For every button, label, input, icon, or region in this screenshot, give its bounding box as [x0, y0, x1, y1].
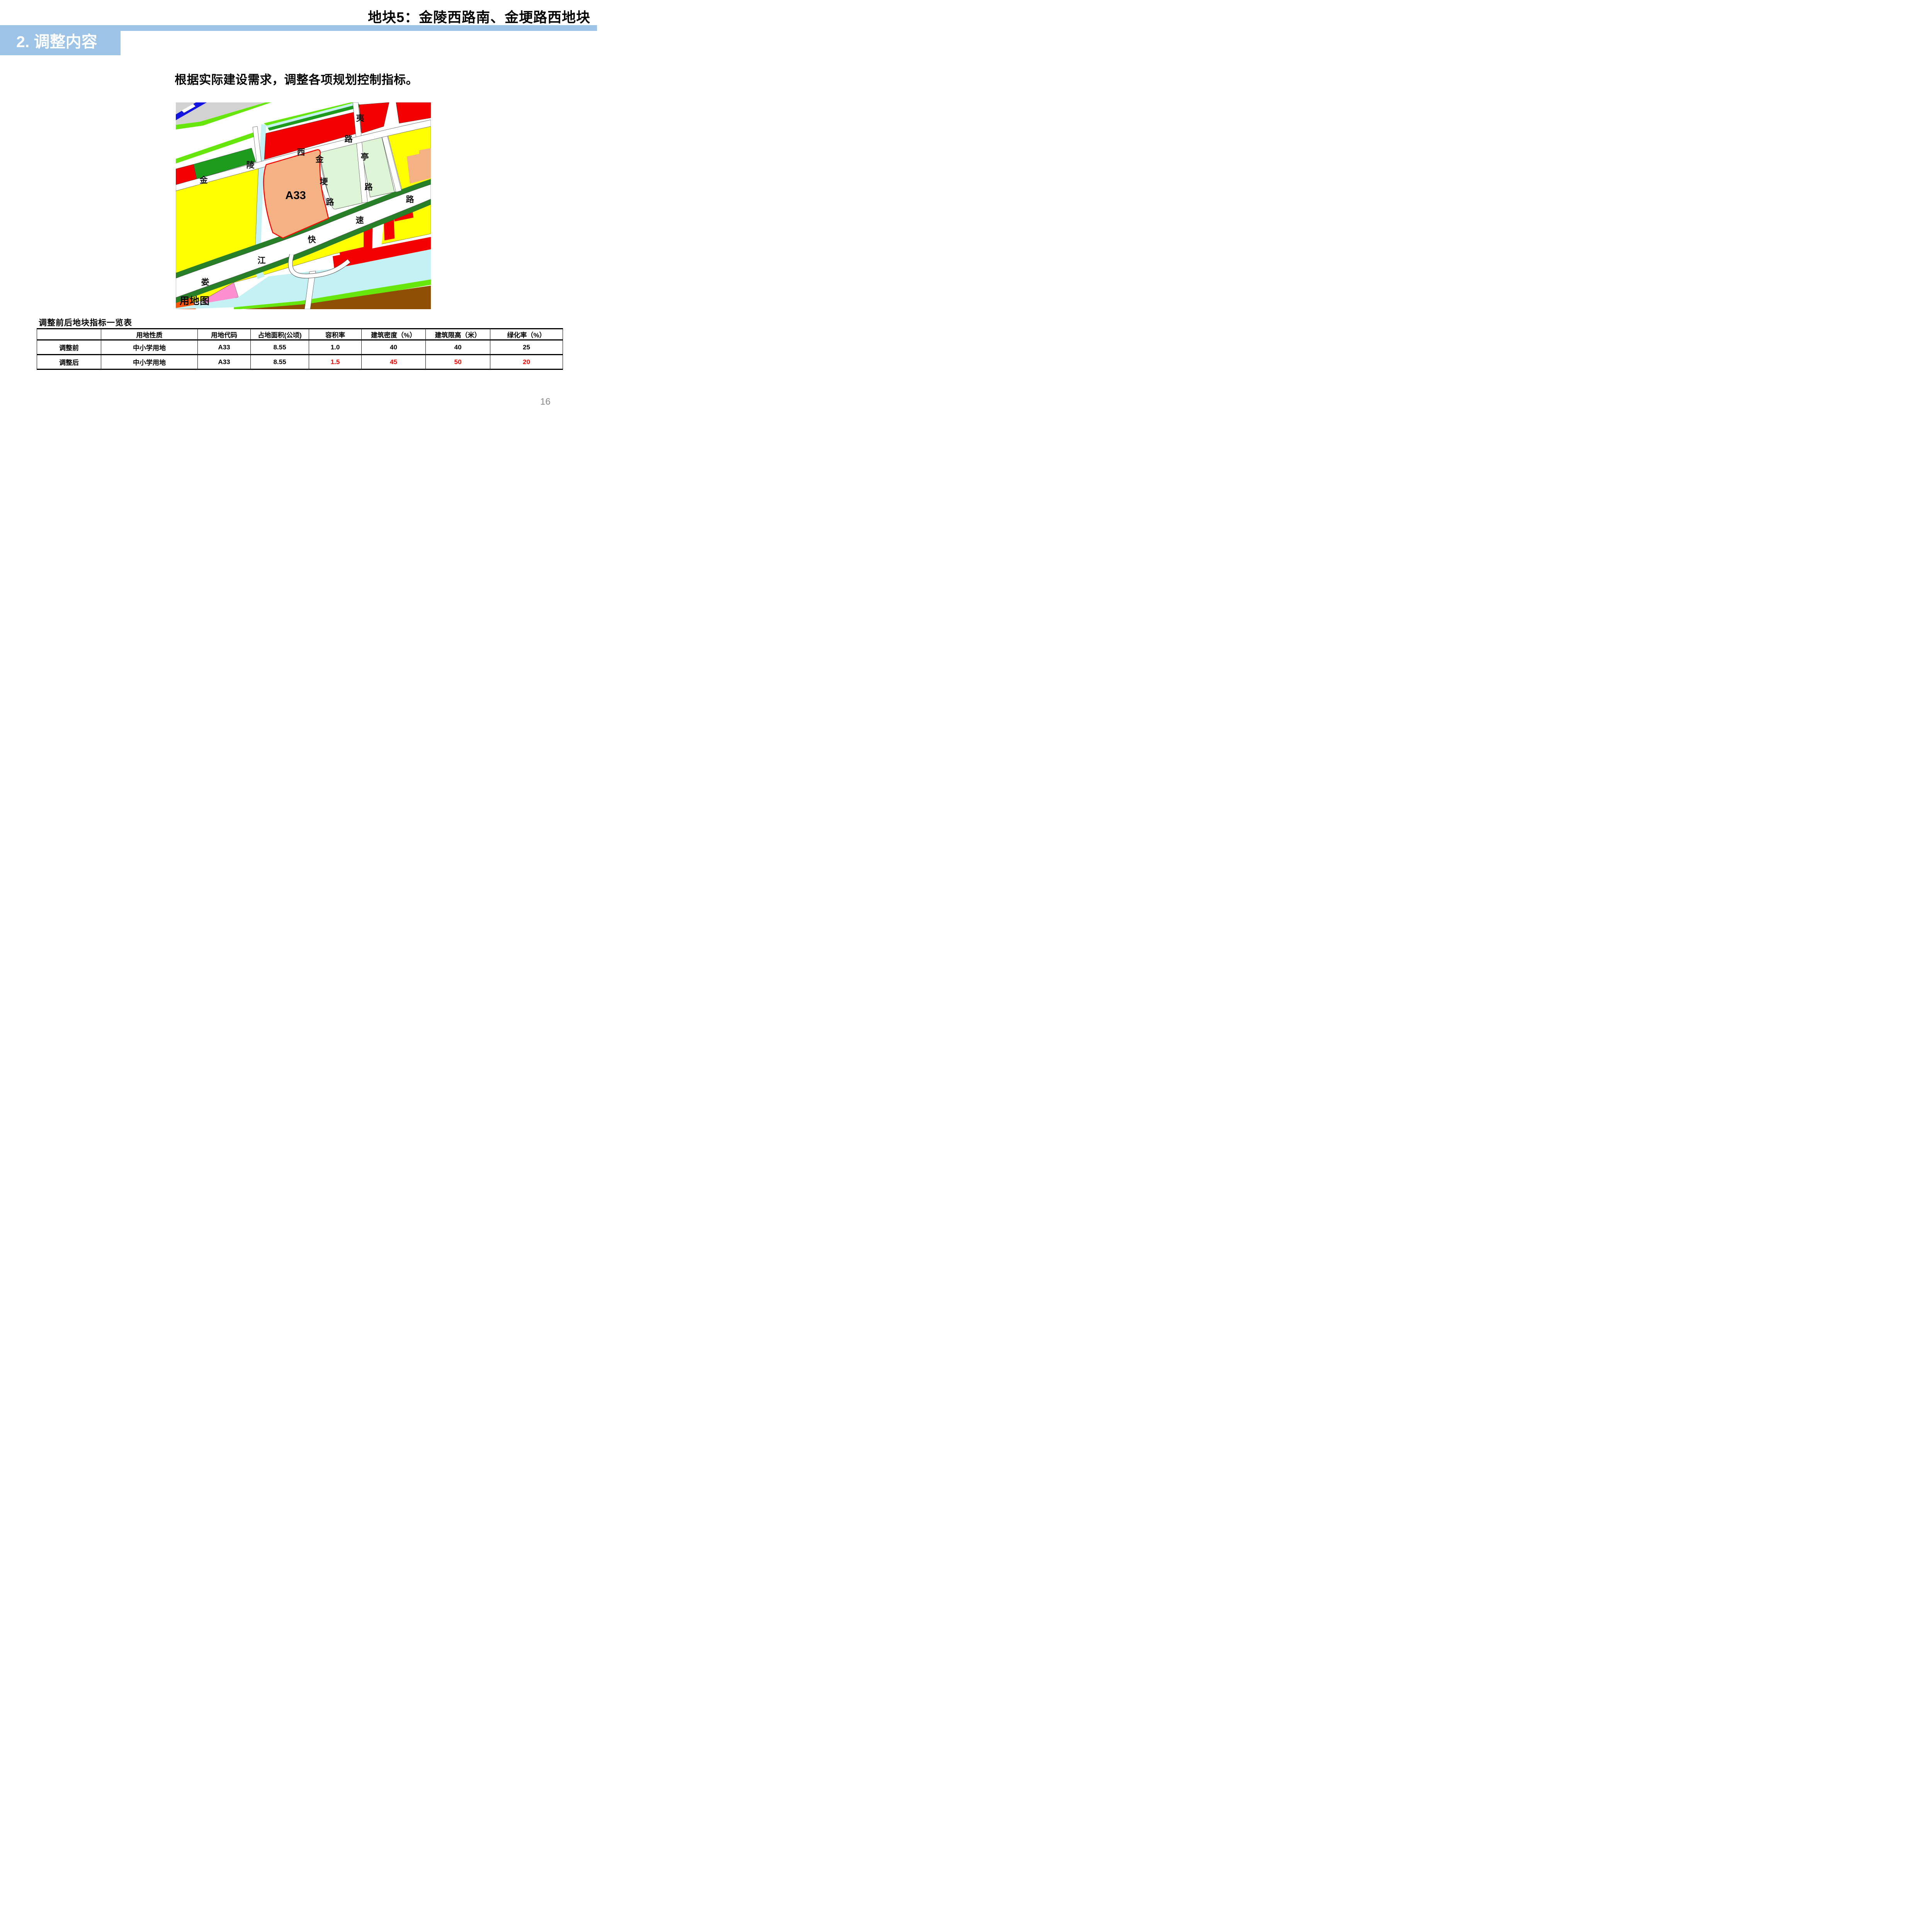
cell-after-code: A33: [198, 355, 251, 369]
section-header: 2. 调整内容: [0, 25, 121, 55]
road-label-yitinglu-3: 路: [365, 182, 373, 192]
indicators-table: 用地性质 用地代码 占地面积(公顷) 容积率 建筑密度（%） 建筑限高（米） 绿…: [37, 328, 563, 370]
slide: 地块5：金陵西路南、金埂路西地块 2. 调整内容 根据实际建设需求，调整各项规划…: [0, 0, 597, 422]
cell-before-code: A33: [198, 340, 251, 355]
road-label-loujiang-2: 江: [258, 256, 266, 265]
road-label-loujiang-5: 路: [406, 195, 415, 204]
header-land-use: 用地性质: [101, 329, 198, 340]
road-label-jinlingxilu-2: 陵: [247, 161, 255, 170]
table-row-after: 调整后 中小学用地 A33 8.55 1.5 45 50 20: [37, 355, 563, 369]
land-use-map: A33 金 陵 西 路 夷 亭 路 金 埂 路 娄 江 快 速 路 用地图: [176, 102, 431, 309]
road-label-jinlingxilu-4: 路: [345, 134, 353, 144]
cell-before-land-use: 中小学用地: [101, 340, 198, 355]
road-label-jinggenglu-2: 埂: [320, 177, 328, 186]
body-text: 根据实际建设需求，调整各项规划控制指标。: [175, 70, 418, 87]
cell-after-far: 1.5: [309, 355, 362, 369]
cell-before-label: 调整前: [37, 340, 101, 355]
header-empty: [37, 329, 101, 340]
table-title: 调整前后地块指标一览表: [39, 317, 132, 328]
cell-after-area: 8.55: [251, 355, 309, 369]
cell-before-green: 25: [490, 340, 563, 355]
table-row-before: 调整前 中小学用地 A33 8.55 1.0 40 40 25: [37, 340, 563, 355]
cell-after-label: 调整后: [37, 355, 101, 369]
page-title: 地块5：金陵西路南、金埂路西地块: [368, 6, 590, 26]
page-number: 16: [540, 397, 551, 407]
road-label-yitinglu-2: 亭: [361, 152, 369, 162]
header-area: 占地面积(公顷): [251, 329, 309, 340]
cell-before-height: 40: [426, 340, 490, 355]
cell-after-green: 20: [490, 355, 563, 369]
road-label-jinlingxilu-3: 西: [297, 148, 305, 157]
road-label-jinggenglu-1: 金: [315, 155, 324, 164]
cell-after-density: 45: [362, 355, 426, 369]
road-label-loujiang-3: 快: [308, 235, 316, 244]
header-height-limit: 建筑限高（米）: [426, 329, 490, 340]
header-green-rate: 绿化率（%）: [490, 329, 563, 340]
cell-after-land-use: 中小学用地: [101, 355, 198, 369]
table-header-row: 用地性质 用地代码 占地面积(公顷) 容积率 建筑密度（%） 建筑限高（米） 绿…: [37, 329, 563, 340]
road-label-jinggenglu-3: 路: [326, 197, 335, 207]
cell-before-density: 40: [362, 340, 426, 355]
header-code: 用地代码: [198, 329, 251, 340]
header-far: 容积率: [309, 329, 362, 340]
cell-before-area: 8.55: [251, 340, 309, 355]
cell-after-height: 50: [426, 355, 490, 369]
plot-a33-label: A33: [285, 189, 306, 202]
header-density: 建筑密度（%）: [362, 329, 426, 340]
road-label-loujiang-4: 速: [356, 216, 364, 225]
road-label-loujiang-1: 娄: [201, 278, 209, 287]
road-label-jinlingxilu-1: 金: [199, 175, 208, 185]
road-label-yitinglu-1: 夷: [356, 114, 365, 123]
cell-before-far: 1.0: [309, 340, 362, 355]
land-use-map-svg: A33 金 陵 西 路 夷 亭 路 金 埂 路 娄 江 快 速 路: [176, 102, 431, 309]
map-caption: 用地图: [180, 293, 210, 307]
